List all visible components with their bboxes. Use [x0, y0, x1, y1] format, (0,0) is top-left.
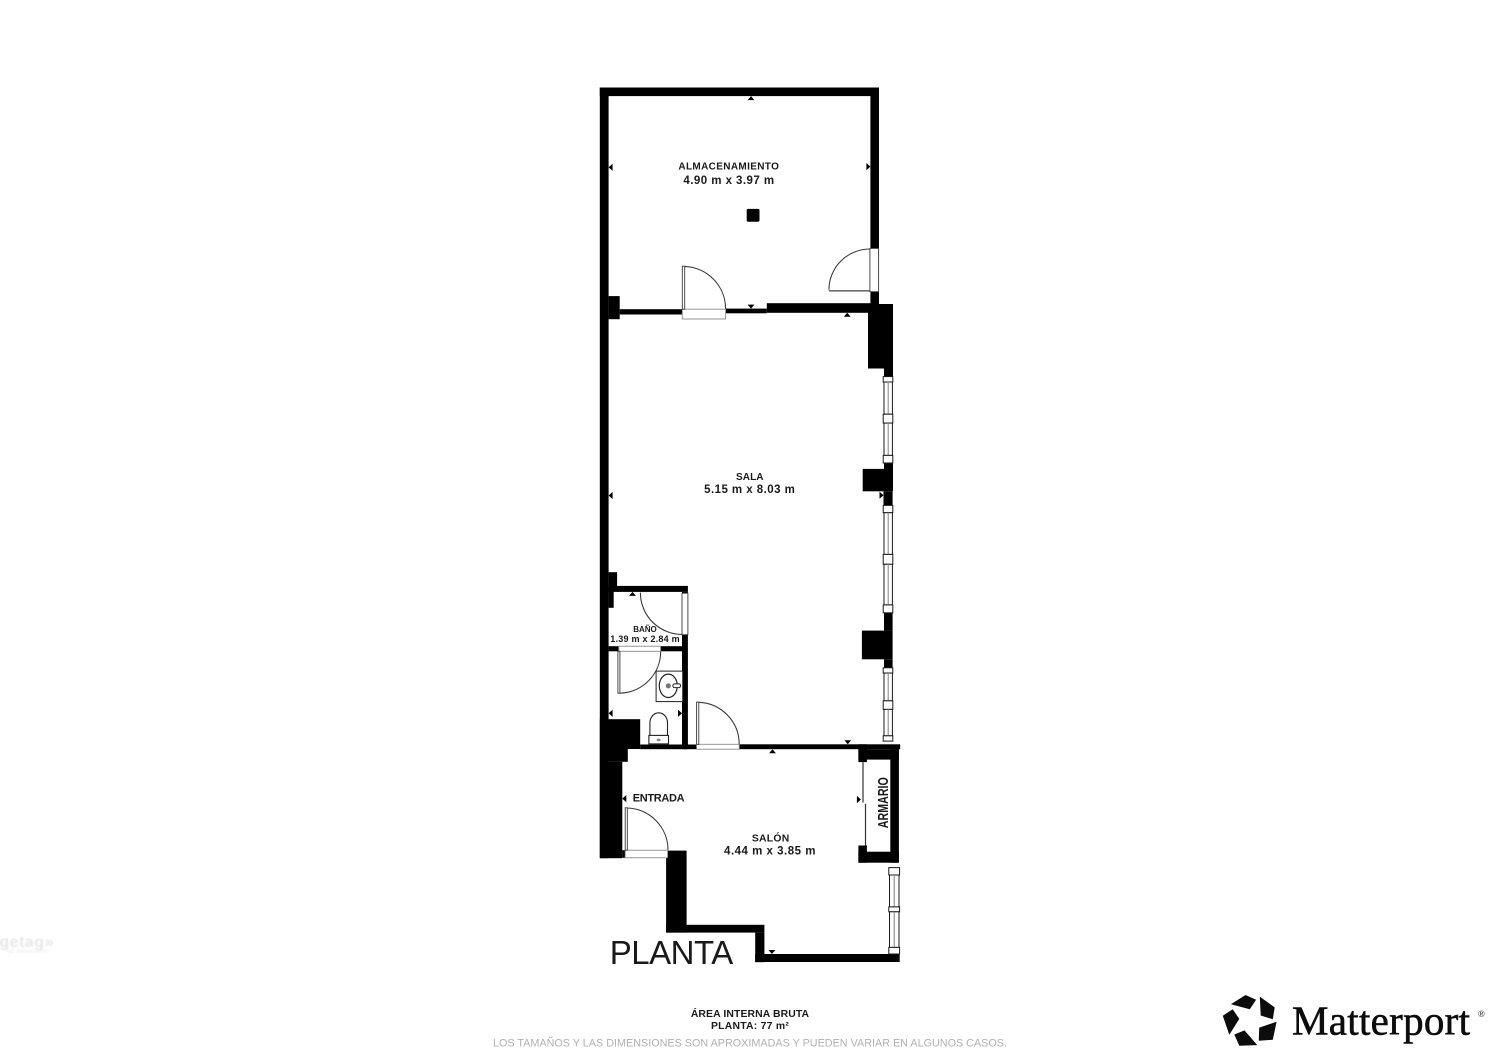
- svg-text:4.90 m x 3.97 m: 4.90 m x 3.97 m: [683, 175, 774, 187]
- svg-text:tal announce: tal announce: [7, 948, 47, 955]
- svg-text:®: ®: [1478, 1009, 1485, 1019]
- svg-text:ENTRADA: ENTRADA: [633, 793, 685, 805]
- svg-text:SALÓN: SALÓN: [752, 832, 790, 845]
- svg-text:PLANTA: 77 m²: PLANTA: 77 m²: [711, 1021, 789, 1032]
- svg-text:Matterport: Matterport: [1292, 998, 1471, 1044]
- svg-text:PLANTA: PLANTA: [610, 934, 733, 971]
- svg-text:4.44 m x 3.85 m: 4.44 m x 3.85 m: [724, 846, 816, 858]
- svg-text:ALMACENAMIENTO: ALMACENAMIENTO: [678, 162, 779, 173]
- svg-text:ARMARIO: ARMARIO: [875, 777, 892, 828]
- svg-text:1.39 m x 2.84 m: 1.39 m x 2.84 m: [610, 634, 680, 644]
- svg-text:ÁREA INTERNA BRUTA: ÁREA INTERNA BRUTA: [691, 1007, 810, 1020]
- svg-text:5.15 m x 8.03 m: 5.15 m x 8.03 m: [704, 484, 795, 496]
- svg-text:LOS TAMAÑOS Y LAS DIMENSIONES: LOS TAMAÑOS Y LAS DIMENSIONES SON APROXI…: [493, 1037, 1007, 1050]
- svg-text:SALA: SALA: [736, 472, 764, 483]
